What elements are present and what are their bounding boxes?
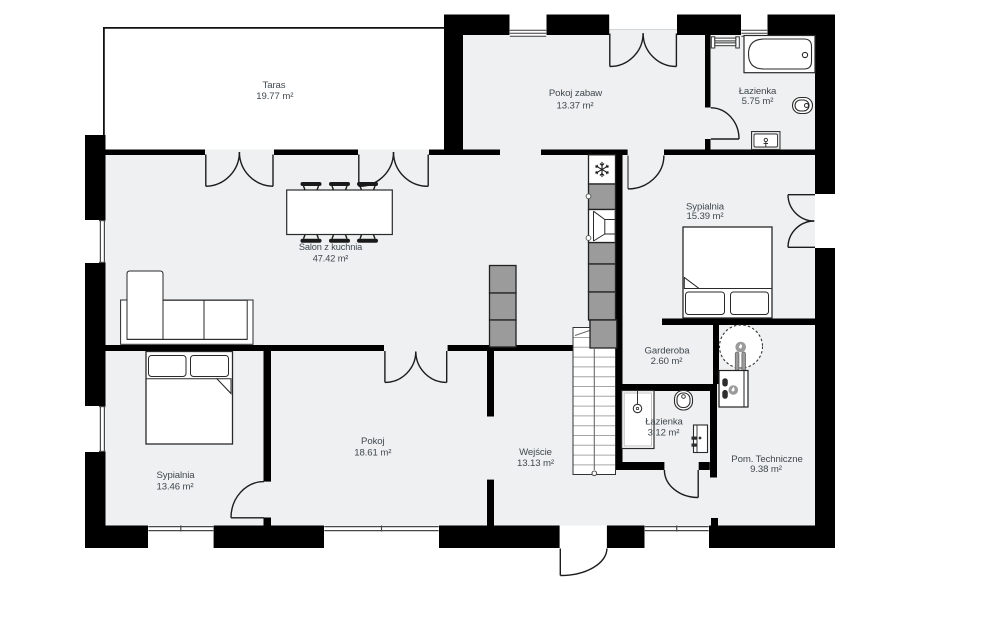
svg-text:9.38 m²: 9.38 m² [750,464,783,475]
svg-text:5.75 m²: 5.75 m² [742,96,775,107]
svg-text:15.39 m²: 15.39 m² [686,211,724,222]
svg-text:Sypialnia: Sypialnia [156,470,195,481]
svg-text:13.37 m²: 13.37 m² [556,100,594,111]
svg-text:19.77 m²: 19.77 m² [256,91,294,102]
svg-text:13.13 m²: 13.13 m² [517,458,555,469]
svg-text:Pokoj: Pokoj [361,436,385,447]
svg-text:3.12 m²: 3.12 m² [648,427,681,438]
svg-text:2.60 m²: 2.60 m² [651,356,684,367]
svg-text:Salon z kuchnia: Salon z kuchnia [299,242,363,252]
svg-text:Łazienka: Łazienka [645,417,683,428]
svg-text:Taras: Taras [263,80,286,91]
svg-text:18.61 m²: 18.61 m² [354,448,392,459]
svg-text:Wejście: Wejście [519,447,552,458]
svg-text:47.42 m²: 47.42 m² [313,253,348,263]
svg-text:Pokoj zabaw: Pokoj zabaw [549,88,602,99]
svg-text:13.46 m²: 13.46 m² [156,482,194,493]
